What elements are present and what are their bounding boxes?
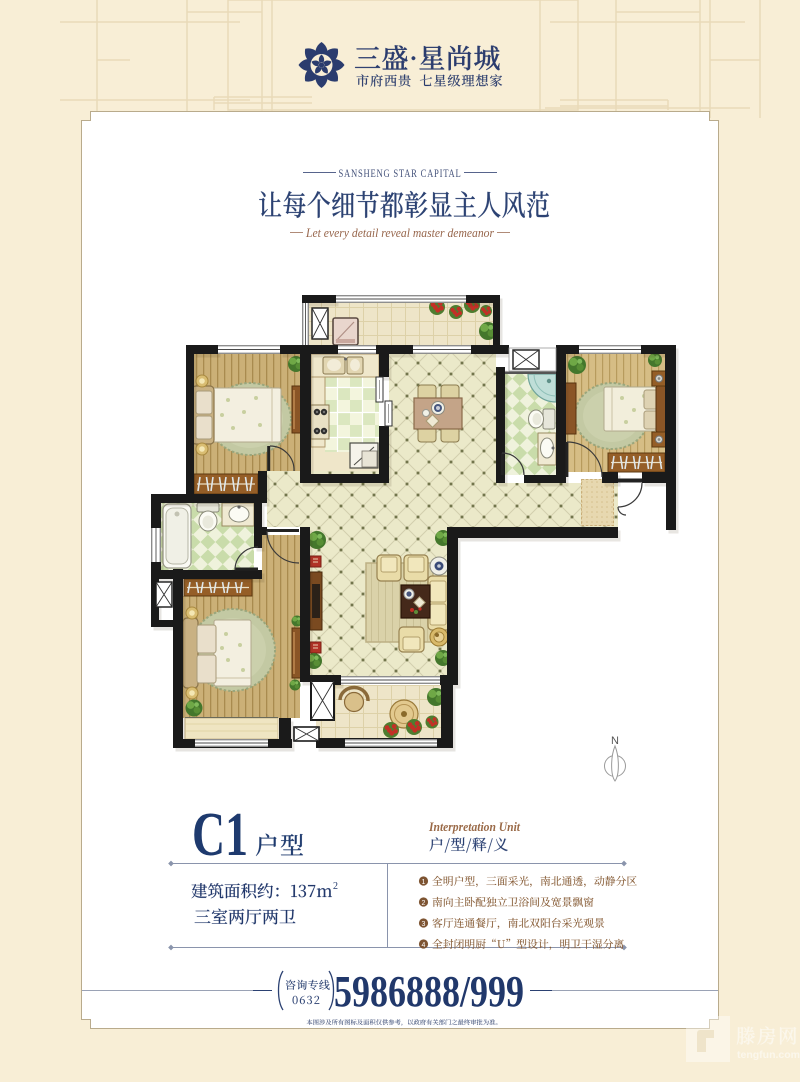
svg-text:2: 2 (422, 900, 426, 907)
svg-text:C1: C1 (192, 801, 248, 869)
svg-text:Let every detail reveal master: Let every detail reveal master demeanor (305, 226, 494, 240)
svg-text:tengfun.com: tengfun.com (737, 1049, 800, 1061)
svg-text:SANSHENG STAR CAPITAL: SANSHENG STAR CAPITAL (339, 168, 462, 180)
svg-text:5986888/999: 5986888/999 (334, 967, 524, 1016)
svg-text:2: 2 (333, 881, 338, 892)
svg-text:3: 3 (422, 921, 426, 928)
svg-text:Interpretation Unit: Interpretation Unit (428, 819, 520, 834)
svg-text:4: 4 (422, 942, 426, 949)
svg-text:1: 1 (422, 879, 426, 886)
